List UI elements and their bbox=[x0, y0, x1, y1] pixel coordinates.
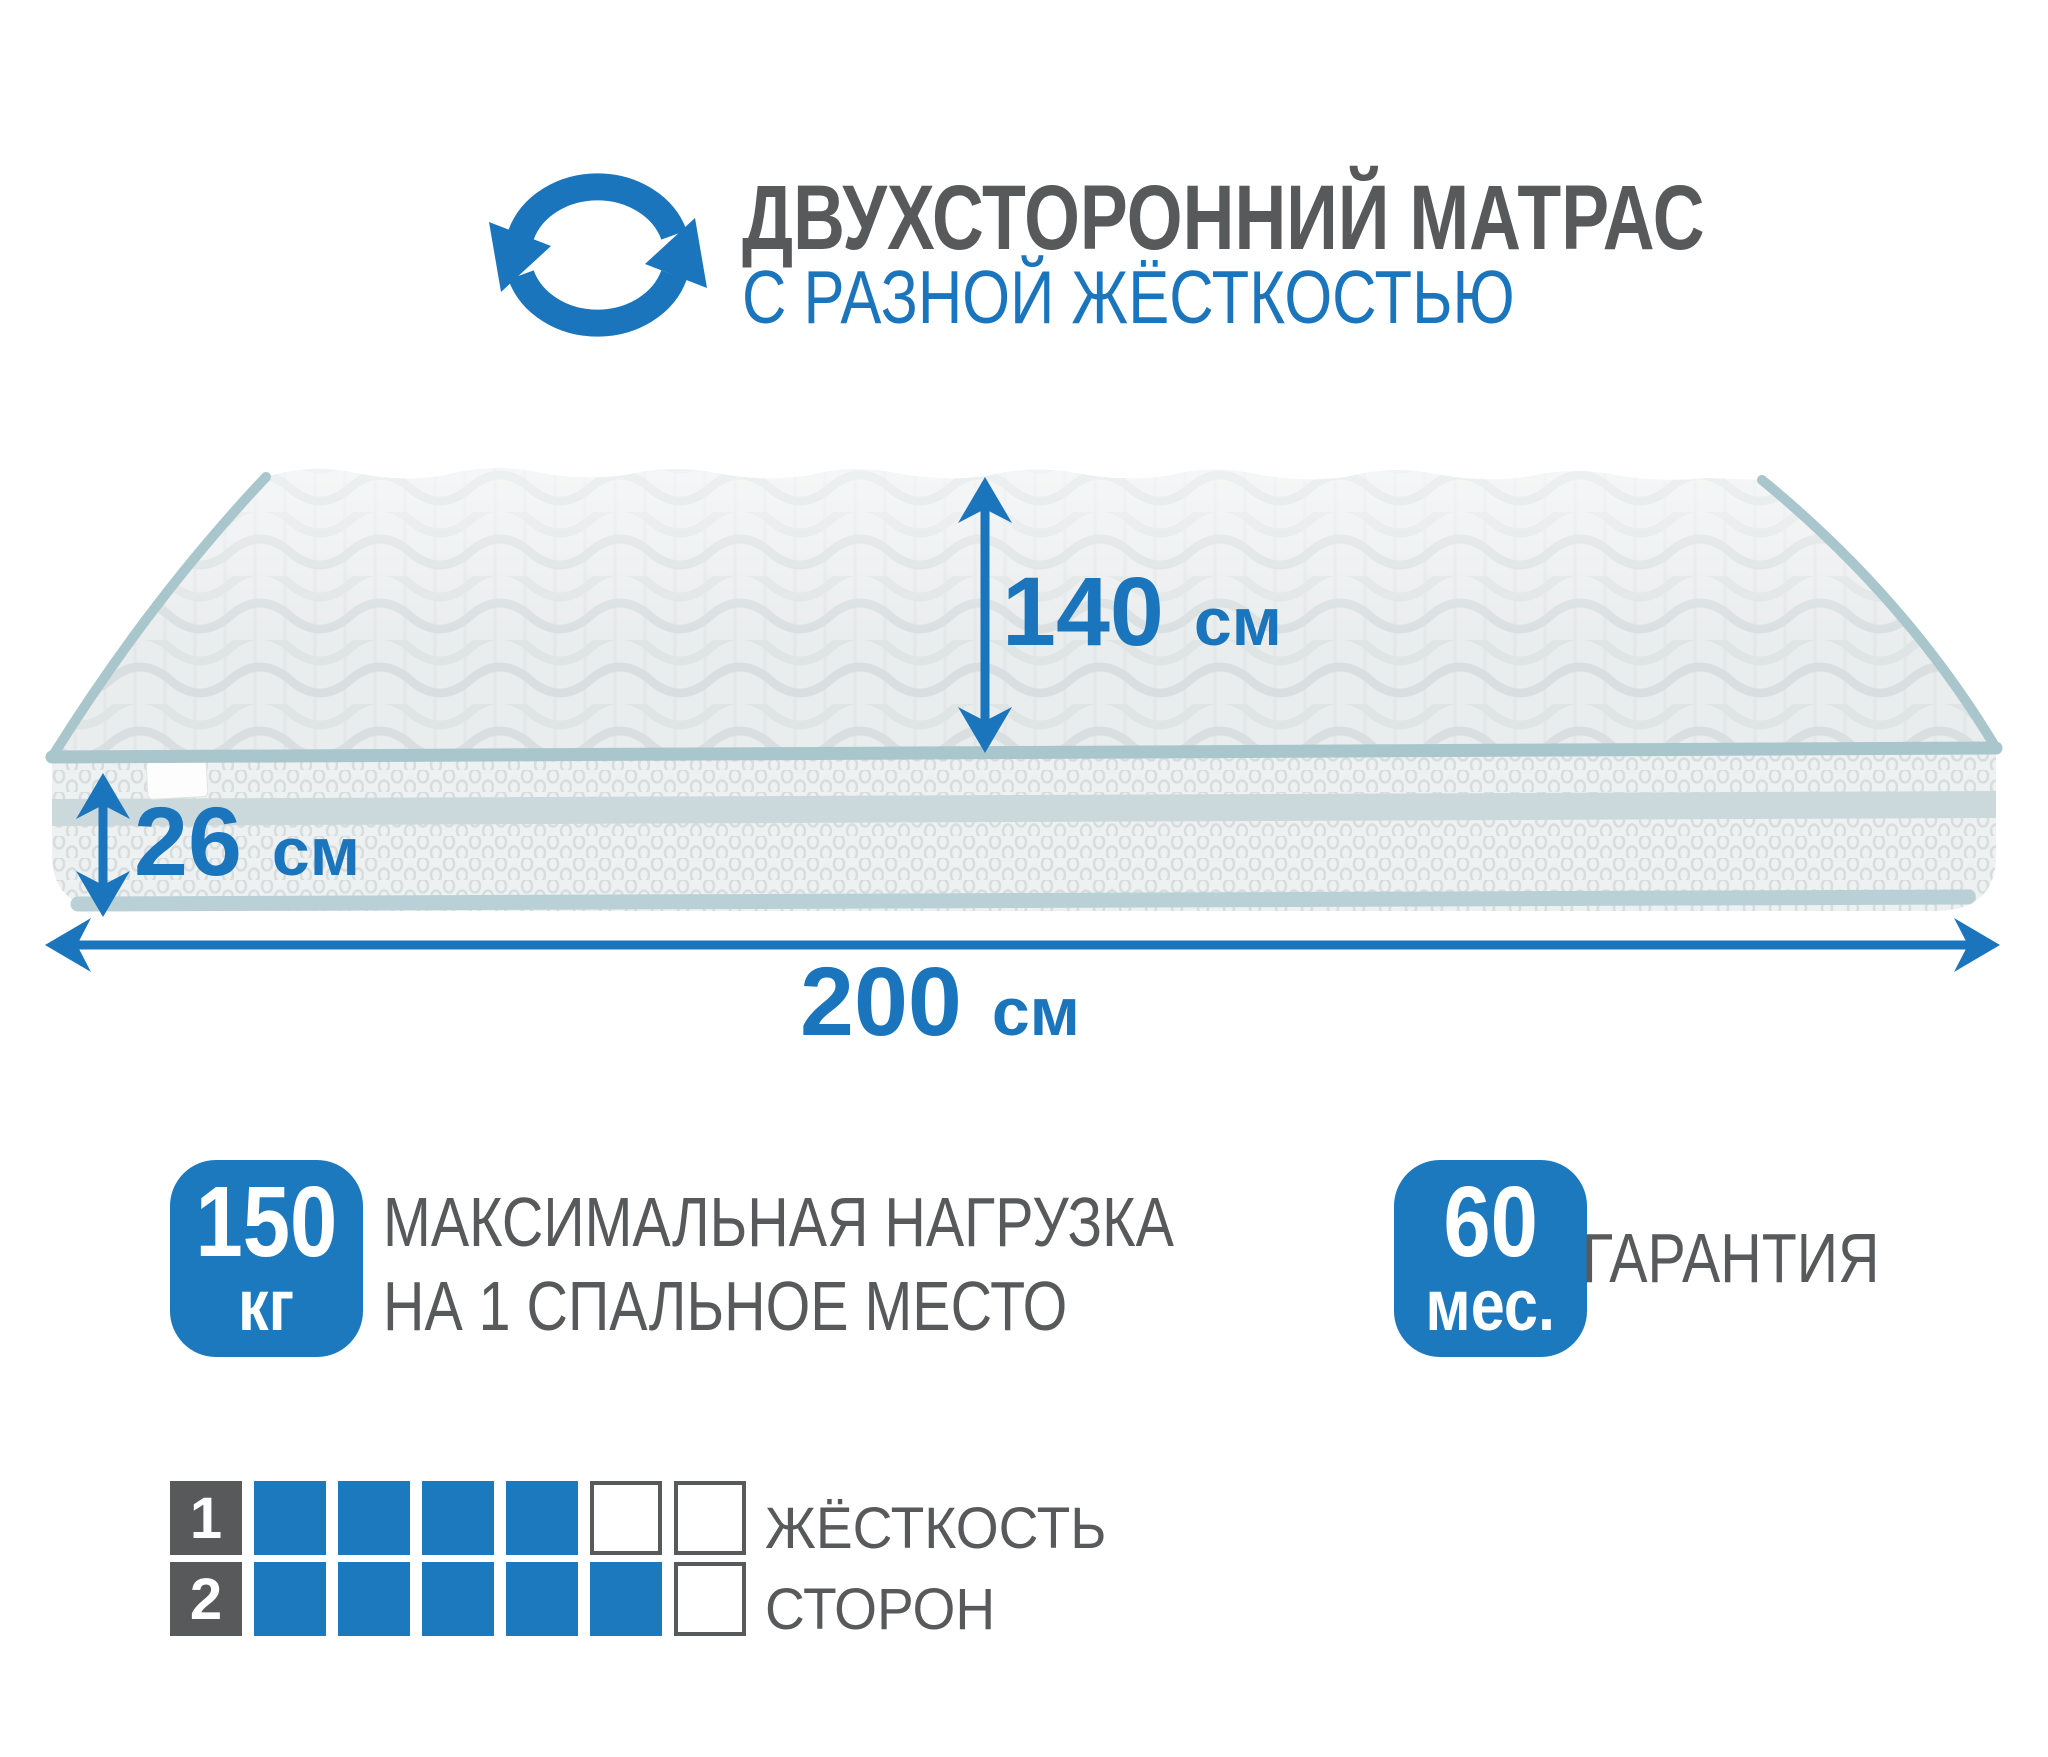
length-value: 200 bbox=[800, 953, 962, 1050]
thickness-value: 26 bbox=[134, 793, 242, 890]
thickness-dimension-label: 26 см bbox=[134, 793, 360, 890]
mattress-front-piping bbox=[52, 748, 1996, 757]
firmness-cell bbox=[674, 1481, 746, 1555]
firmness-cell bbox=[338, 1481, 410, 1555]
mattress-bottom-piping bbox=[78, 897, 1968, 904]
firmness-caption: ЖЁСТКОСТЬ СТОРОН bbox=[765, 1488, 1106, 1650]
rotate-arrows-icon bbox=[489, 187, 707, 323]
page-title: ДВУХСТОРОННИЙ МАТРАС bbox=[742, 172, 1705, 264]
max-load-caption: МАКСИМАЛЬНАЯ НАГРУЗКА НА 1 СПАЛЬНОЕ МЕСТ… bbox=[383, 1180, 1174, 1348]
max-load-caption-line1: МАКСИМАЛЬНАЯ НАГРУЗКА bbox=[383, 1180, 1174, 1264]
firmness-cell bbox=[338, 1562, 410, 1636]
width-dimension-label: 140 см bbox=[1002, 563, 1282, 660]
firmness-cell bbox=[422, 1562, 494, 1636]
max-load-badge: 150 кг bbox=[170, 1160, 363, 1357]
length-unit: см bbox=[992, 978, 1080, 1046]
firmness-cell bbox=[506, 1562, 578, 1636]
firmness-cell bbox=[506, 1481, 578, 1555]
thickness-unit: см bbox=[272, 818, 360, 886]
width-value: 140 bbox=[1002, 563, 1164, 660]
page-subtitle: С РАЗНОЙ ЖЁСТКОСТЬЮ bbox=[742, 260, 1515, 335]
warranty-badge: 60 мес. bbox=[1394, 1160, 1587, 1357]
firmness-caption-line2: СТОРОН bbox=[765, 1569, 1106, 1650]
firmness-cell bbox=[674, 1562, 746, 1636]
firmness-cell bbox=[254, 1562, 326, 1636]
firmness-row: 2 bbox=[170, 1562, 746, 1636]
warranty-caption-line: ГАРАНТИЯ bbox=[1582, 1216, 1879, 1300]
firmness-cell bbox=[254, 1481, 326, 1555]
firmness-cell bbox=[422, 1481, 494, 1555]
max-load-caption-line2: НА 1 СПАЛЬНОЕ МЕСТО bbox=[383, 1264, 1174, 1348]
firmness-row-number: 1 bbox=[170, 1481, 242, 1555]
max-load-value: 150 bbox=[196, 1176, 338, 1268]
firmness-row: 1 bbox=[170, 1481, 746, 1555]
firmness-cell bbox=[590, 1481, 662, 1555]
warranty-caption: ГАРАНТИЯ bbox=[1582, 1216, 1879, 1300]
firmness-caption-line1: ЖЁСТКОСТЬ bbox=[765, 1488, 1106, 1569]
firmness-cell bbox=[590, 1562, 662, 1636]
warranty-value: 60 bbox=[1443, 1176, 1538, 1268]
mattress-infographic: ДВУХСТОРОННИЙ МАТРАС С РАЗНОЙ ЖЁСТКОСТЬЮ… bbox=[0, 0, 2048, 1757]
length-dimension-label: 200 см bbox=[800, 953, 1080, 1050]
firmness-row-number: 2 bbox=[170, 1562, 242, 1636]
max-load-unit: кг bbox=[238, 1270, 294, 1342]
warranty-unit: мес. bbox=[1426, 1270, 1556, 1342]
width-unit: см bbox=[1194, 588, 1282, 656]
